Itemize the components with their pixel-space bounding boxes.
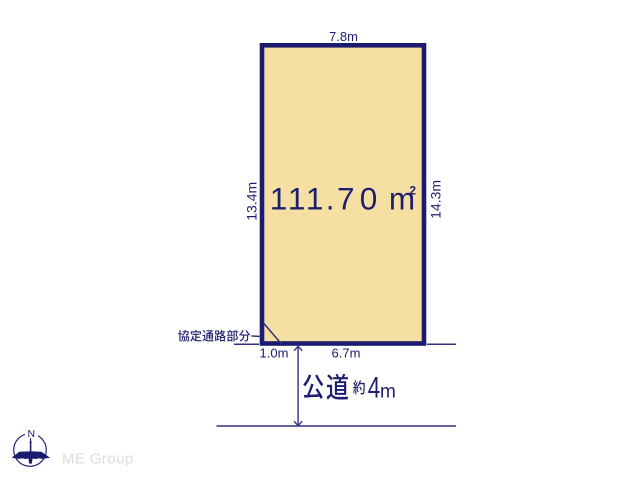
svg-text:N: N <box>28 428 36 440</box>
svg-text:7.8m: 7.8m <box>329 29 358 44</box>
svg-text:ME Group: ME Group <box>62 451 134 468</box>
svg-text:14.3m: 14.3m <box>428 180 444 219</box>
svg-text:m: m <box>380 381 396 402</box>
svg-text:6.7m: 6.7m <box>332 346 361 361</box>
svg-text:4: 4 <box>368 370 381 404</box>
svg-text:2: 2 <box>409 183 416 197</box>
svg-text:111.70m: 111.70m <box>270 181 415 217</box>
svg-text:1.0m: 1.0m <box>260 346 289 361</box>
svg-text:13.4m: 13.4m <box>244 182 260 221</box>
